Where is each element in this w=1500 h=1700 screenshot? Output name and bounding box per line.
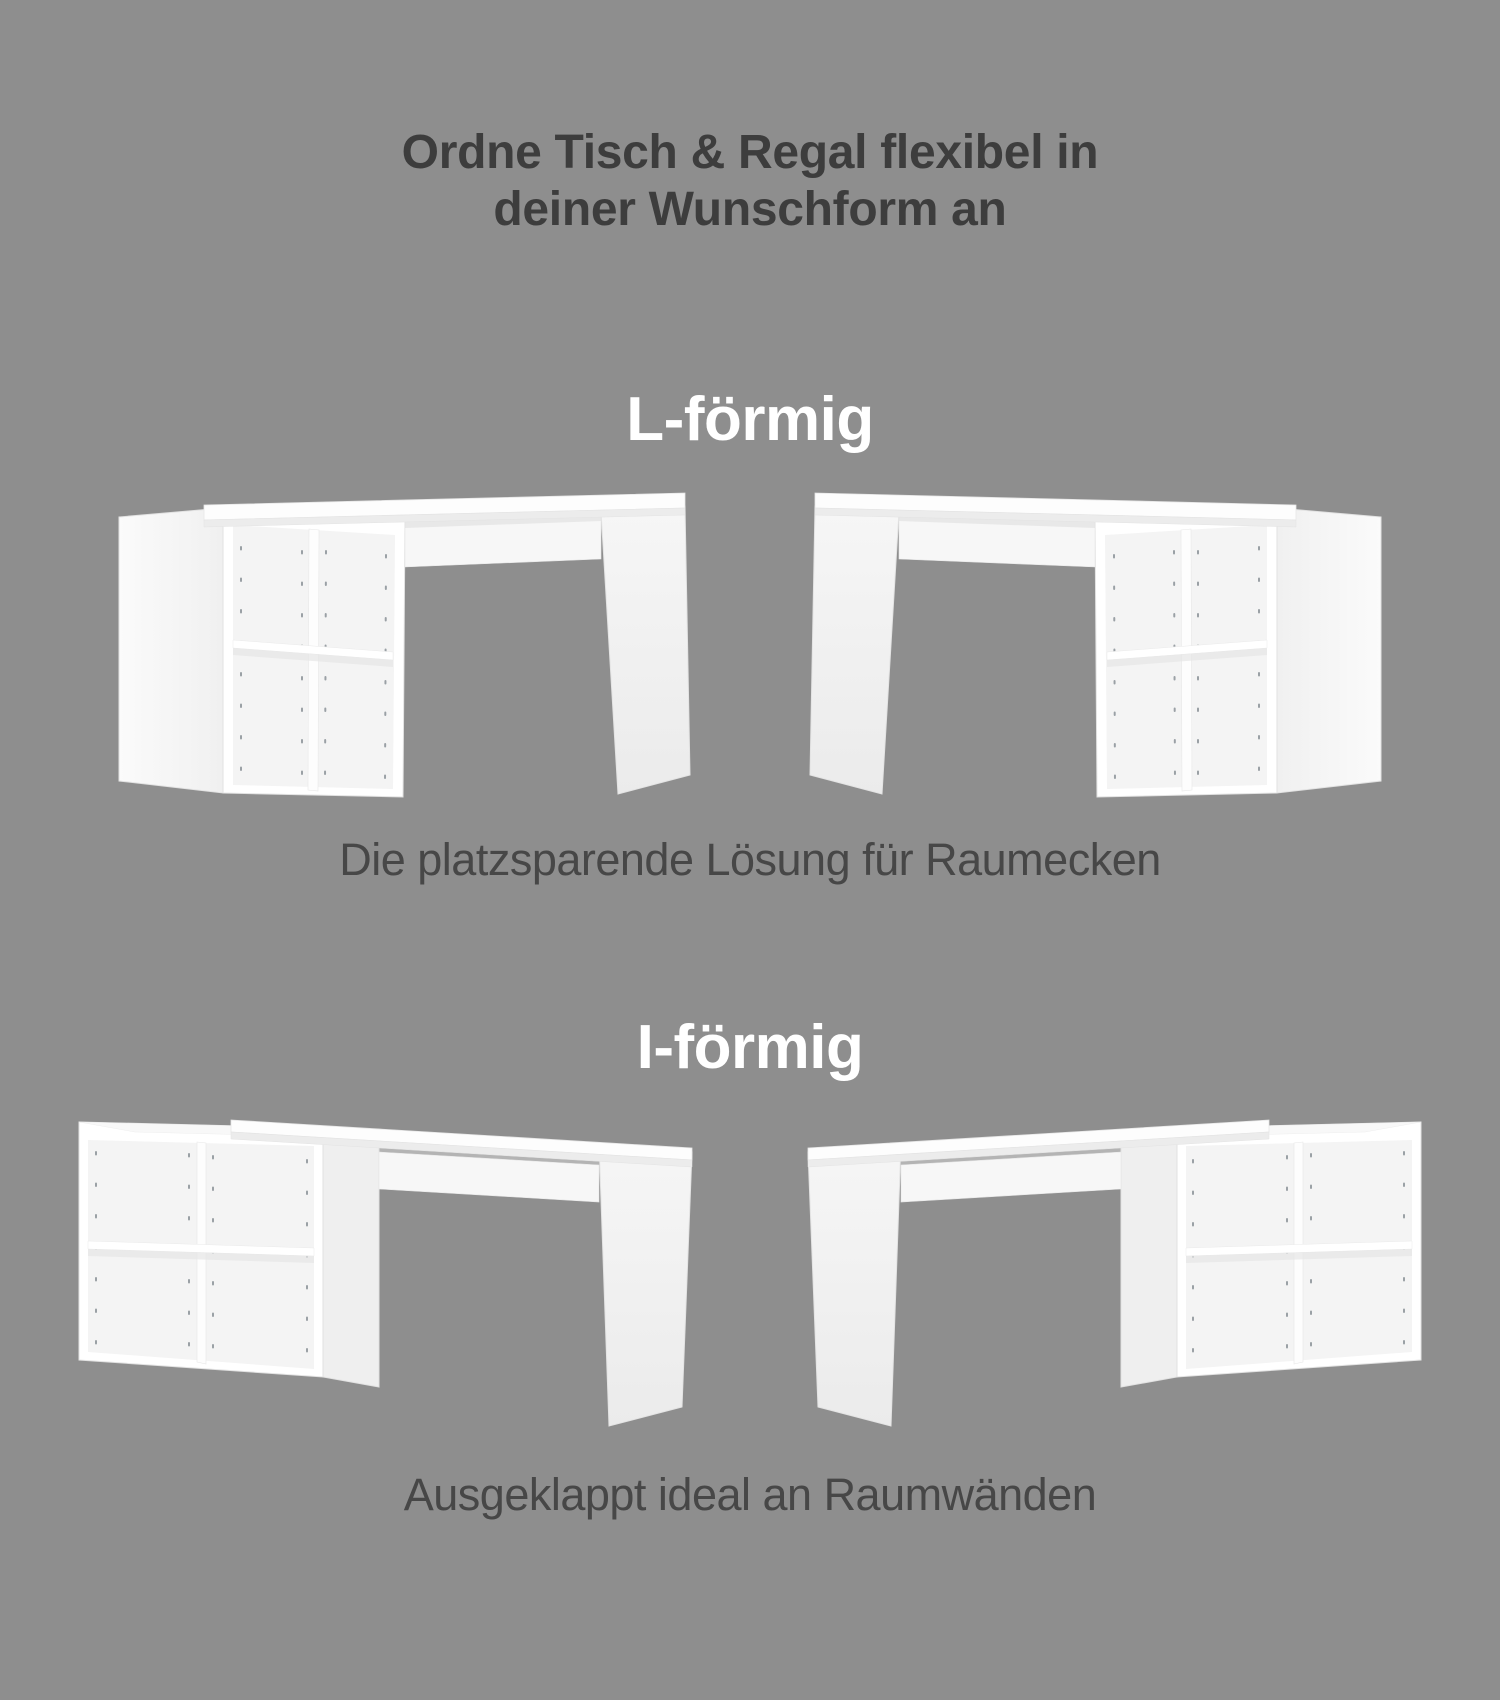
section-i-caption: Ausgeklappt ideal an Raumwänden xyxy=(0,1466,1500,1525)
section-l-caption: Die platzsparende Lösung für Raumecken xyxy=(0,831,1500,890)
page-title-line1: Ordne Tisch & Regal flexibel in xyxy=(0,124,1500,181)
section-l-heading: L-förmig xyxy=(0,384,1500,455)
page-title: Ordne Tisch & Regal flexibel in deiner W… xyxy=(0,124,1500,238)
poster: Ordne Tisch & Regal flexibel in deiner W… xyxy=(0,0,1500,1700)
l-shaped-desk-illustration-left xyxy=(109,455,709,800)
i-shaped-desk-illustration-left xyxy=(71,1092,726,1462)
page-title-line2: deiner Wunschform an xyxy=(0,181,1500,238)
section-i-heading: I-förmig xyxy=(0,1012,1500,1083)
section-l-illustrations xyxy=(0,455,1500,800)
l-shaped-desk-illustration-right xyxy=(791,455,1391,800)
i-shaped-desk-illustration-right xyxy=(774,1092,1429,1462)
section-i-illustrations xyxy=(0,1092,1500,1462)
